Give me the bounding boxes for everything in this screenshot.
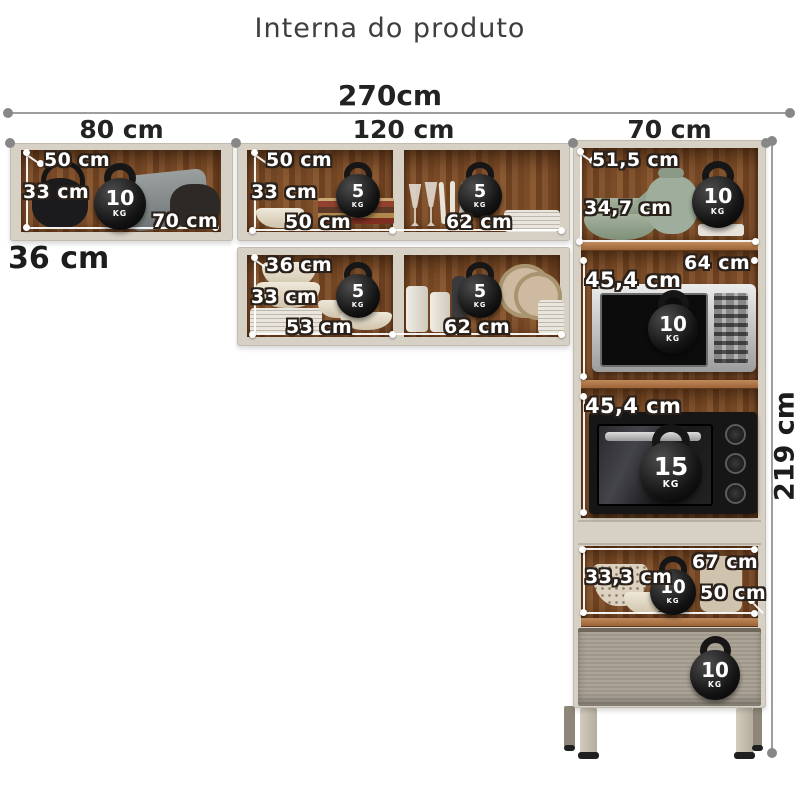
weight-unit: KG	[474, 301, 487, 309]
kettlebell-body: 15 KG	[640, 441, 702, 503]
middle-top-height-label: 33 cm	[251, 181, 317, 203]
oven-control-panel	[719, 420, 751, 508]
measure-dot	[576, 238, 583, 245]
left-cabinet-height-label: 33 cm	[23, 181, 89, 203]
tower-open-shelf-width-label: 67 cm	[692, 551, 758, 573]
kettlebell-body: 10 KG	[648, 304, 698, 354]
middle-bottom-depth-label: 36 cm	[266, 254, 332, 276]
measure-dot	[251, 149, 258, 156]
leg-foot	[734, 752, 755, 759]
kettlebell-body: 5 KG	[458, 274, 502, 318]
kettlebell-10kg: 10 KG	[692, 161, 744, 228]
weight-unit: KG	[663, 479, 680, 490]
section-width-middle: 120 cm	[237, 115, 570, 144]
leg-foot	[564, 745, 575, 751]
measure-dot	[752, 238, 759, 245]
kettlebell-5kg: 5 KG	[458, 162, 502, 218]
middle-bottom-left-width-label: 53 cm	[286, 316, 352, 338]
leg-foot	[752, 745, 763, 751]
kettlebell-10kg: 10 KG	[648, 290, 698, 354]
weight-value: 5	[352, 184, 364, 201]
kettlebell-10kg: 10 KG	[94, 163, 146, 230]
measure-line-vertical	[580, 151, 582, 239]
oven-knob	[725, 424, 746, 445]
kettlebell-body: 5 KG	[336, 274, 380, 318]
kettlebell-body: 10 KG	[94, 178, 146, 230]
cup-prop	[406, 286, 428, 332]
total-width-label: 270cm	[0, 79, 780, 112]
kettlebell-5kg: 5 KG	[336, 162, 380, 218]
section-width-left: 80 cm	[10, 115, 233, 144]
tower-shelf-divider	[581, 242, 758, 250]
panel-seam	[578, 520, 761, 522]
dimension-endpoint-dot	[767, 748, 777, 758]
dimension-endpoint-dot	[785, 108, 795, 118]
tower-shelf-divider	[581, 618, 758, 626]
tower-open-shelf-depth-label: 50 cm	[700, 582, 766, 604]
weight-unit: KG	[113, 209, 127, 218]
weight-unit: KG	[352, 301, 365, 309]
product-dimensions-diagram: Interna do produto 270cm 80 cm 120 cm 70…	[0, 0, 800, 800]
measure-line-horizontal	[581, 548, 756, 550]
weight-value: 5	[474, 284, 486, 301]
tower-microwave-height-label: 45,4 cm	[585, 268, 681, 292]
measure-dot	[580, 373, 587, 380]
total-height-label: 219 cm	[770, 391, 800, 501]
measure-dot	[751, 257, 758, 264]
leg-foot	[578, 752, 599, 759]
microwave-keypad	[714, 293, 748, 363]
weight-unit: KG	[711, 207, 725, 216]
left-cabinet-base-depth-label: 36 cm	[8, 241, 109, 276]
weight-value: 10	[701, 661, 729, 680]
oven-knob	[725, 483, 746, 504]
left-cabinet-depth-label: 50 cm	[44, 149, 110, 171]
weight-value: 10	[659, 315, 687, 334]
weight-value: 5	[352, 284, 364, 301]
section-boundary-dot	[5, 138, 15, 148]
panel-seam	[578, 543, 761, 545]
measure-dot	[249, 227, 256, 234]
cabinet-leg	[580, 708, 597, 754]
left-cabinet-width-label: 70 cm	[152, 210, 218, 232]
oven-knob	[725, 453, 746, 474]
measure-dot	[389, 331, 396, 338]
weight-unit: KG	[708, 680, 722, 689]
kettlebell-15kg: 15 KG	[640, 424, 702, 503]
section-boundary-dot	[231, 138, 241, 148]
measure-dot	[580, 257, 587, 264]
measure-dot	[580, 609, 587, 616]
measure-dot	[558, 331, 565, 338]
tower-microwave-width-label: 64 cm	[684, 252, 750, 274]
kettlebell-body: 10 KG	[692, 176, 744, 228]
kettlebell-body: 10 KG	[690, 650, 740, 700]
cabinet-leg	[564, 706, 575, 748]
page-title: Interna do produto	[0, 13, 780, 44]
weight-unit: KG	[474, 201, 487, 209]
plates-prop	[538, 300, 564, 334]
middle-bottom-height-label: 33 cm	[251, 286, 317, 308]
middle-bottom-right-width-label: 62 cm	[444, 316, 510, 338]
tower-top-shelf-depth-label: 51,5 cm	[592, 149, 679, 171]
kettlebell-5kg: 5 KG	[458, 262, 502, 318]
tower-shelf-divider	[581, 380, 758, 388]
measure-dot	[37, 160, 44, 167]
kettlebell-5kg: 5 KG	[336, 262, 380, 318]
measure-dot	[23, 149, 30, 156]
kettlebell-10kg: 10 KG	[690, 636, 740, 700]
measure-dot	[558, 227, 565, 234]
measure-dot	[580, 509, 587, 516]
middle-top-depth-label: 50 cm	[266, 149, 332, 171]
cabinet-leg	[736, 708, 753, 754]
total-width-line	[8, 112, 790, 114]
measure-dot	[577, 148, 584, 155]
measure-dot	[389, 227, 396, 234]
weight-unit: KG	[352, 201, 365, 209]
tower-open-shelf-height-label: 33,3 cm	[585, 566, 672, 588]
weight-value: 5	[474, 184, 486, 201]
middle-top-right-width-label: 62 cm	[446, 211, 512, 233]
dimension-endpoint-dot	[3, 108, 13, 118]
measure-dot	[751, 610, 758, 617]
tower-top-shelf-height-label: 34,7 cm	[584, 197, 671, 219]
tower-oven-height-label: 45,4 cm	[585, 394, 681, 418]
weight-unit: KG	[666, 334, 680, 343]
weight-value: 10	[704, 187, 733, 207]
middle-top-left-width-label: 50 cm	[285, 211, 351, 233]
weight-value: 15	[654, 455, 689, 479]
weight-unit: KG	[667, 597, 680, 605]
measure-dot	[251, 254, 258, 261]
cabinet-leg	[753, 706, 762, 748]
measure-dot	[579, 546, 586, 553]
section-boundary-dot	[568, 138, 578, 148]
measure-line-horizontal	[578, 240, 756, 242]
measure-dot	[249, 331, 256, 338]
measure-dot	[23, 224, 30, 231]
weight-value: 10	[106, 189, 135, 209]
dimension-endpoint-dot	[767, 136, 777, 146]
